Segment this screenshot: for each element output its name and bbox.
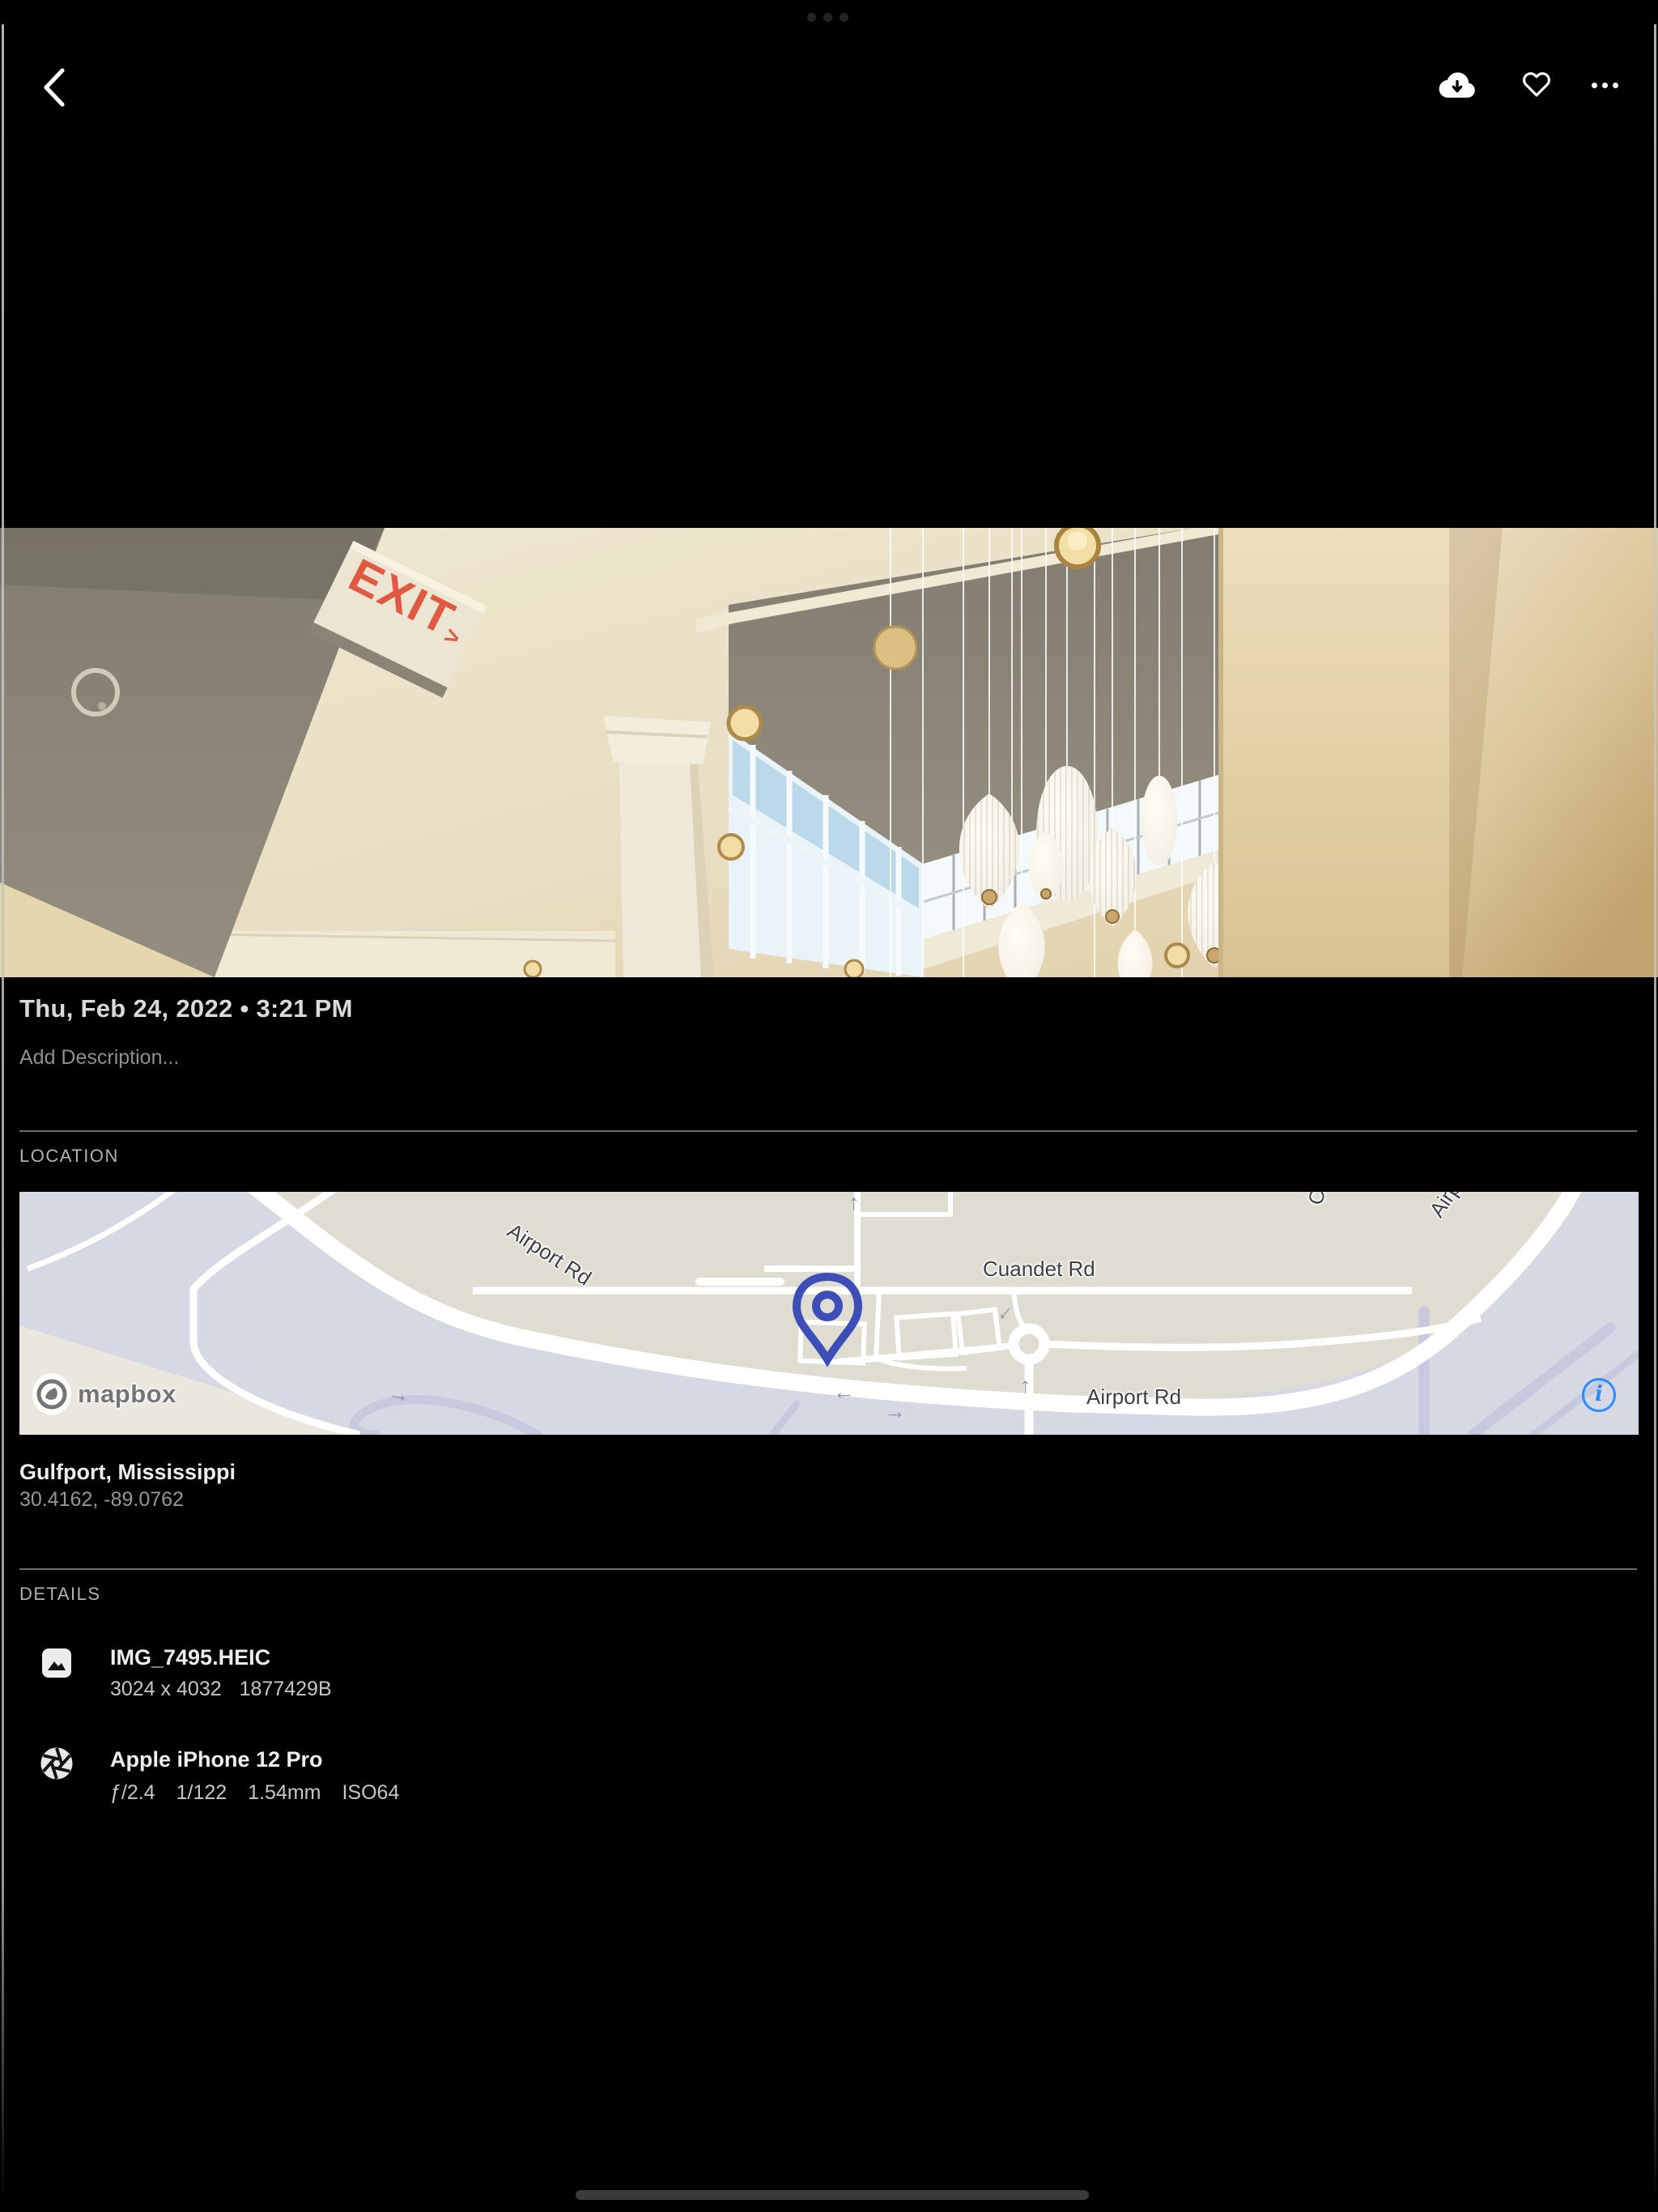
- street-label: Airport Rd: [1086, 1385, 1181, 1410]
- camera-aperture: ƒ/2.4: [110, 1781, 155, 1805]
- mapbox-wordmark: mapbox: [78, 1380, 176, 1409]
- file-name: IMG_7495.HEIC: [110, 1645, 270, 1670]
- multitask-dot: [840, 13, 848, 22]
- multitask-dot: [807, 13, 816, 22]
- more-options-button[interactable]: [1592, 79, 1630, 91]
- screen-edge-highlight-left: [2, 24, 4, 2199]
- cloud-download-icon: [1438, 70, 1477, 102]
- location-coordinates: 30.4162, -89.0762: [19, 1488, 184, 1512]
- file-size: 1877429B: [240, 1678, 332, 1701]
- file-dimensions: 3024 x 4032: [110, 1678, 222, 1701]
- camera-focal-length: 1.54mm: [248, 1781, 321, 1805]
- heart-icon: [1520, 68, 1553, 100]
- location-place: Gulfport, Mississippi: [19, 1460, 236, 1485]
- photo-preview[interactable]: EXIT>: [0, 528, 1658, 977]
- mapbox-logo[interactable]: mapbox: [31, 1372, 176, 1417]
- ellipsis-icon: [1613, 83, 1618, 88]
- image-file-icon: [40, 1647, 73, 1679]
- location-map[interactable]: → ← → ↑ ↑ ↓ Airport Rd Cuandet Rd Airpor…: [19, 1192, 1639, 1435]
- ellipsis-icon: [1592, 83, 1597, 88]
- svg-text:→: →: [386, 1380, 412, 1407]
- section-divider: [19, 1130, 1637, 1132]
- mapbox-icon: [31, 1373, 73, 1415]
- camera-settings: ƒ/2.4 1/122 1.54mm ISO64: [110, 1781, 399, 1805]
- svg-text:↑: ↑: [848, 1192, 860, 1214]
- favorite-button[interactable]: [1520, 68, 1553, 100]
- ellipsis-icon: [1602, 83, 1608, 88]
- back-button[interactable]: [36, 65, 74, 110]
- location-heading: LOCATION: [19, 1146, 119, 1167]
- chevron-left-icon: [36, 65, 74, 110]
- description-field[interactable]: Add Description...: [19, 1046, 179, 1070]
- multitask-dot: [823, 13, 832, 22]
- camera-name: Apple iPhone 12 Pro: [110, 1747, 323, 1772]
- multitask-indicator[interactable]: [807, 13, 856, 23]
- svg-text:←: ←: [833, 1380, 855, 1404]
- camera-iso: ISO64: [342, 1781, 399, 1805]
- home-indicator[interactable]: [576, 2190, 1089, 2200]
- screen-edge-highlight-right: [1654, 24, 1656, 2199]
- map-canvas: → ← → ↑ ↑ ↓: [19, 1192, 1639, 1435]
- file-meta: 3024 x 4032 1877429B: [110, 1678, 332, 1701]
- street-label: Cuandet Rd: [983, 1257, 1095, 1282]
- map-info-button[interactable]: i: [1582, 1378, 1616, 1412]
- camera-aperture-icon: [39, 1746, 74, 1781]
- camera-shutter: 1/122: [176, 1781, 227, 1805]
- details-heading: DETAILS: [19, 1584, 101, 1605]
- photo-date: Thu, Feb 24, 2022 • 3:21 PM: [19, 994, 353, 1023]
- svg-text:↑: ↑: [1020, 1373, 1031, 1397]
- download-button[interactable]: [1438, 70, 1477, 102]
- photo-scene: [0, 528, 1658, 977]
- section-divider: [19, 1568, 1637, 1570]
- svg-text:→: →: [884, 1399, 906, 1423]
